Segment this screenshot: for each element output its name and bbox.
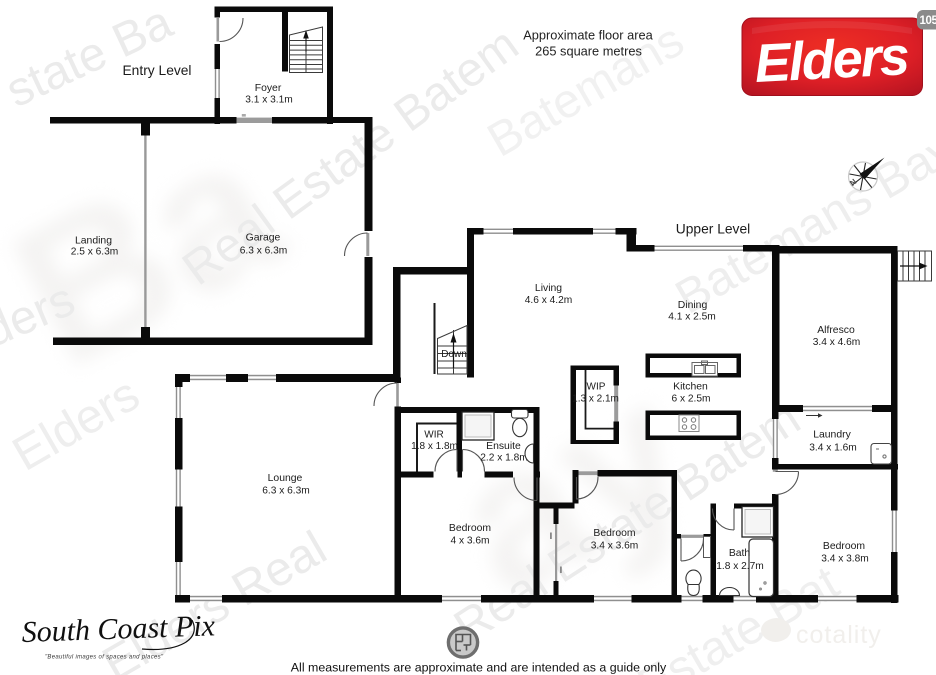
- svg-text:Lounge: Lounge: [268, 473, 303, 484]
- svg-text:Entry Level: Entry Level: [122, 63, 191, 78]
- svg-text:WIP: WIP: [587, 382, 606, 393]
- svg-text:Laundry: Laundry: [813, 430, 851, 441]
- svg-text:South Coast Pix: South Coast Pix: [21, 609, 216, 649]
- svg-text:1.3 x 2.1m: 1.3 x 2.1m: [572, 394, 619, 405]
- svg-text:1.8 x 2.7m: 1.8 x 2.7m: [716, 561, 764, 572]
- svg-text:Elders: Elders: [753, 26, 910, 94]
- svg-text:4 x 3.6m: 4 x 3.6m: [450, 536, 489, 547]
- svg-text:"Beautiful images of spaces an: "Beautiful images of spaces and places": [45, 655, 164, 661]
- svg-text:6.3 x 6.3m: 6.3 x 6.3m: [262, 486, 310, 497]
- svg-text:3.4 x 1.6m: 3.4 x 1.6m: [809, 443, 857, 454]
- svg-text:cotality: cotality: [796, 621, 882, 649]
- svg-text:Ensuite: Ensuite: [486, 441, 521, 452]
- svg-text:All measurements are approxima: All measurements are approximate and are…: [291, 661, 667, 675]
- svg-text:105: 105: [920, 15, 936, 27]
- svg-text:Bath: Bath: [729, 548, 751, 559]
- svg-text:265 square metres: 265 square metres: [535, 44, 642, 59]
- svg-text:Alfresco: Alfresco: [817, 325, 855, 336]
- svg-text:WIR: WIR: [424, 430, 443, 441]
- svg-text:Landing: Landing: [75, 236, 112, 247]
- svg-text:Kitchen: Kitchen: [673, 382, 708, 393]
- svg-text:6 x 2.5m: 6 x 2.5m: [671, 394, 710, 405]
- svg-text:Living: Living: [535, 283, 562, 294]
- svg-text:3.4 x 3.6m: 3.4 x 3.6m: [591, 541, 639, 552]
- svg-text:1.8 x 1.8m: 1.8 x 1.8m: [411, 441, 458, 452]
- svg-text:Bedroom: Bedroom: [449, 523, 491, 534]
- svg-text:Approximate floor area: Approximate floor area: [523, 28, 653, 43]
- svg-text:Bedroom: Bedroom: [593, 528, 635, 539]
- svg-text:Down: Down: [441, 349, 467, 360]
- svg-text:6.3 x 6.3m: 6.3 x 6.3m: [240, 246, 288, 257]
- svg-text:Upper Level: Upper Level: [676, 222, 750, 237]
- svg-text:Bedroom: Bedroom: [823, 541, 865, 552]
- svg-text:4.6 x 4.2m: 4.6 x 4.2m: [525, 295, 573, 306]
- svg-text:2.2 x 1.8m: 2.2 x 1.8m: [480, 453, 528, 464]
- svg-text:3.1 x 3.1m: 3.1 x 3.1m: [245, 95, 293, 106]
- svg-text:3.4 x 3.8m: 3.4 x 3.8m: [821, 554, 869, 565]
- svg-text:Foyer: Foyer: [255, 83, 282, 94]
- svg-text:Garage: Garage: [246, 233, 281, 244]
- svg-text:Dining: Dining: [678, 300, 708, 311]
- svg-text:4.1 x 2.5m: 4.1 x 2.5m: [668, 312, 716, 323]
- svg-text:3.4 x 4.6m: 3.4 x 4.6m: [813, 337, 861, 348]
- svg-text:2.5 x 6.3m: 2.5 x 6.3m: [71, 247, 119, 258]
- svg-text:state Ba: state Ba: [0, 0, 181, 118]
